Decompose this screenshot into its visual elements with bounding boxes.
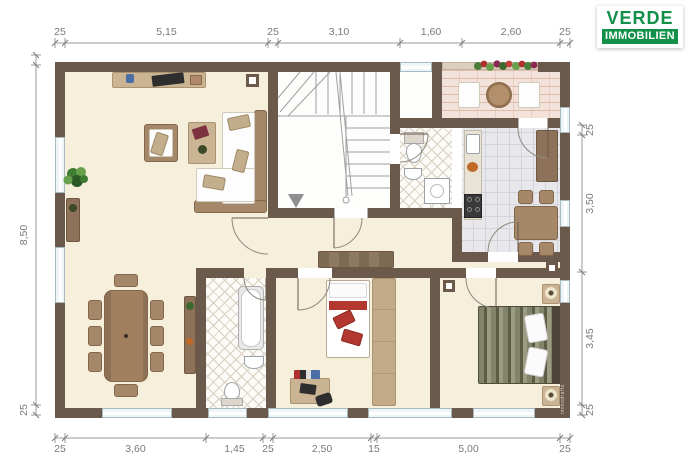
dining-chair-l2 [88,326,102,346]
dimension-line [567,40,573,46]
logo: VERDE IMMOBILIEN [597,6,683,48]
wall-bath-right [266,268,276,408]
bed-headboard [552,306,560,384]
dimension-line [579,412,585,418]
kitchen-sink [466,134,480,154]
dimension-line [275,40,281,46]
dimension-line [33,402,39,408]
window-bottom-1 [102,408,172,418]
dimension-label: 5,00 [458,443,479,455]
wall-kitchen-top-b [548,118,560,128]
dimension-line [270,435,276,441]
dimension-label: 25 [262,443,274,455]
dimension-label: 25 [54,26,66,38]
double-bed [478,306,560,384]
wall-bedrooms-divider [430,268,440,408]
dining-chair-l1 [88,300,102,320]
sideboard-fruit [186,338,193,345]
desk-clutter [294,370,320,379]
single-bed-pillow [329,283,367,298]
dimension-line [374,435,380,441]
wall-hall-bottom-b [368,208,462,218]
decor-bowl [198,145,207,154]
balcony-chair-1 [458,82,480,108]
dimension-line [368,435,374,441]
window-bottom-4 [368,408,452,418]
dimension-label: 25 [54,443,66,455]
wall-hall-bottom-a [268,208,334,218]
wardrobe [372,278,396,406]
kitchen-tall-unit [536,130,558,182]
dimension-label: 3,10 [329,26,350,38]
dimension-line [579,122,585,128]
dining-chair-bottom [114,384,138,397]
wall-kitchen-top-a [462,118,518,128]
dimension-label: 25 [559,26,571,38]
decor-blue [126,74,134,83]
sofa-back-right [254,110,267,208]
kitchen-chair-2 [539,190,554,204]
hall-opening-threshold [334,208,368,218]
shaft-box-1 [246,74,259,87]
dimension-label: 2,50 [312,443,333,455]
burner-1 [467,197,472,202]
kitchen-chair-4 [539,242,554,256]
decor-frame [190,75,202,85]
dimension-line [52,435,58,441]
window-left-1 [55,137,65,193]
balcony-door-threshold [518,118,548,128]
dimension-label: 3,50 [584,193,596,214]
window-bottom-2 [208,408,247,418]
floorplan-canvas: 255,15253,101,602,6025253,601,45252,5015… [0,0,700,464]
dimension-label: 2,60 [501,26,522,38]
window-bottom-3 [268,408,348,418]
dimension-label: 25 [18,404,30,416]
dimension-line [557,435,563,441]
dining-chair-r3 [150,352,164,372]
dimension-line [579,402,585,408]
dimension-label: 1,45 [224,443,245,455]
bath-sink [244,356,264,369]
dimension-line [557,40,563,46]
fruit-bowl [467,162,478,172]
dimension-line [33,62,39,68]
dining-table-center [124,334,128,338]
wc-sink [404,168,422,180]
bath-toilet-tank [221,398,243,406]
window-top [400,62,432,72]
dimension-line [265,40,271,46]
shaft-box-2 [443,280,455,292]
hall-wardrobe [318,251,394,268]
dimension-label: 3,60 [125,443,146,455]
dimension-line [33,412,39,418]
single-bed-band [329,301,367,310]
window-right-1 [560,107,570,133]
dimension-label: 15 [368,443,380,455]
lamp-1 [545,287,557,299]
wall-top [55,62,400,72]
wall-rooms-top-d [496,268,570,278]
dimension-label: 25 [267,26,279,38]
burner-4 [475,207,480,212]
dimension-line [62,40,68,46]
window-right-2 [560,200,570,227]
dimension-label: 25 [584,124,596,136]
dimension-label: 5,15 [156,26,177,38]
window-right-3 [560,280,570,303]
dining-chair-r2 [150,326,164,346]
dimension-line [260,435,266,441]
dimension-label: 3,45 [584,328,596,349]
bathtub-inner [241,289,261,347]
dimension-line [397,40,403,46]
logo-subtitle: IMMOBILIEN [602,29,678,44]
balcony-table [486,82,512,108]
dimension-line [459,40,465,46]
cabinet-plant [69,204,77,212]
dimension-line [579,269,585,275]
dimension-line [62,435,68,441]
sideboard-plant [186,302,194,310]
dimension-label: 8,50 [18,225,30,246]
laptop [299,383,316,395]
dimension-line [567,435,573,441]
burner-3 [467,207,472,212]
dimension-line [52,40,58,46]
lamp-2 [545,389,557,401]
kitchen-table [514,206,558,240]
dimension-label: 25 [559,443,571,455]
shaft-box-3 [546,262,558,274]
stair-hall-floor [278,72,390,208]
wall-left [55,62,65,418]
washing-machine-drum [430,184,444,198]
wall-stair-left [268,62,278,218]
dimension-label: 1,60 [421,26,442,38]
wall-wc-top [390,118,462,128]
wall-rooms-top-c [332,268,466,278]
window-left-2 [55,247,65,303]
kitchen-chair-3 [518,242,533,256]
dining-chair-l3 [88,352,102,372]
dimension-label: 25 [584,404,596,416]
kitchen-chair-1 [518,190,533,204]
wall-bath-left [196,268,206,408]
balcony-chair-2 [518,82,540,108]
burner-2 [475,197,480,202]
watermark: immodrafts [560,334,569,414]
wall-kitchen-bottom-a [452,252,488,262]
dimension-line [33,52,39,58]
balcony-railing [442,62,538,70]
dimension-line [579,132,585,138]
window-bottom-5 [473,408,535,418]
dining-chair-top [114,274,138,287]
dining-chair-r1 [150,300,164,320]
logo-title: VERDE [602,9,678,27]
dimension-line [203,435,209,441]
